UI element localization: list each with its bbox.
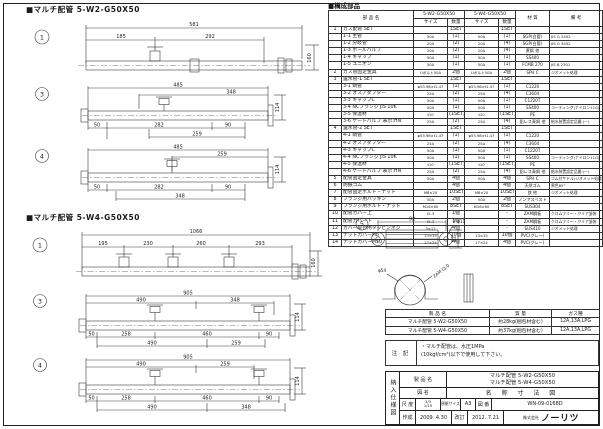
part-no: 1 [329, 27, 342, 34]
w2-size: φ53.98×t1.47 [414, 83, 448, 90]
balloon-number: 4 [38, 361, 42, 369]
remark: クロムフリー・クリア塗装 [550, 218, 603, 225]
gas-type: 12A,13A,LPG [552, 326, 600, 335]
w2-qty: (2) [448, 140, 465, 147]
table-row: 1-3 ボールバルブ20A(2)20A(4)黄銅 他 [329, 48, 603, 55]
material: SPH C [516, 69, 550, 76]
remark: 給水装置認定品番:(一) [550, 119, 603, 126]
table-row: 4-2 オスアダプター25A(2)25A(4)C3604 [329, 140, 603, 147]
product-name: マルチ配管 5-W4-G50X50 [386, 326, 490, 335]
remark [550, 197, 603, 204]
product-spec-table: 製 品 名 質 量 ガス種 マルチ配管 5-W2-G50X50約28kg(梱包材… [385, 309, 600, 336]
dim-label: 92 [409, 217, 415, 223]
table-row: 4-3 キャップC50A(1)50A(1)C1220T [329, 147, 603, 154]
section-w2-title: ■マルチ配管 5-W2-G50X50 [26, 4, 326, 15]
remark: コーティング(ナイロン11G) [550, 105, 603, 112]
w2-qty: (2) [448, 41, 465, 48]
part-no: 2 [329, 69, 342, 76]
w2-qty: (1SET) [448, 161, 465, 168]
part-no [329, 90, 342, 97]
drawing-number-label: 図 番 [475, 399, 491, 410]
w4-qty: 10個 [499, 232, 516, 239]
dim-label: 90 [225, 123, 231, 129]
parts-table-title: ■構成部品 [328, 2, 602, 10]
dim-label: 50 [94, 123, 100, 129]
w2-size: 50A [414, 55, 448, 62]
w4-qty: (1SET) [499, 161, 516, 168]
w4-qty: 4個 [499, 183, 516, 190]
col-header-gas-type: ガス種 [552, 309, 600, 318]
dim-label: 90 [266, 396, 272, 402]
notes-box: 注 記 ・マルチ配管は、水圧1MPa (10kgf/cm²)以下で使用して下さい… [385, 340, 599, 366]
dim-label: 50 [88, 396, 94, 402]
table-row: マルチ配管 5-W4-G50X50約37kg(梱包材含む)12A,13A,LPG [386, 326, 600, 335]
material: SPH C [516, 175, 550, 182]
ball-valve [224, 257, 234, 267]
w4-qty: 8SET [499, 204, 516, 211]
w2-qty: 1SET [448, 76, 465, 83]
material: PE [516, 161, 550, 168]
table-row: 3-6 ゲートバルブ 表示:HN25A(2)25A(4)鉛レス青銅 他給水装置認… [329, 119, 603, 126]
product-name: マルチ配管 5-W2-G50X50 [386, 318, 490, 327]
remark: 黒色65° [550, 183, 603, 190]
w2-size: 25A [414, 140, 448, 147]
w2-qty: (1) [448, 62, 465, 69]
part-no: 8 [329, 197, 342, 204]
remark: クロムフリー・クリア塗装 [550, 211, 603, 218]
part-no: 6 [329, 183, 342, 190]
dim-label: 258 [121, 332, 131, 338]
part-no [329, 154, 342, 161]
material: C1220 [516, 133, 550, 140]
remark: ジオメット処理 [550, 225, 603, 232]
w2-qty: (1) [448, 97, 465, 104]
dim-label: 490 [147, 405, 157, 411]
table-row: 9フランジ用ボルト・ナットM16×608SETM16×608SETSUS304 [329, 204, 603, 211]
table-row: 3-3 キャップC50A(1)50A(1)C1220T [329, 97, 603, 104]
w2-qty: 2個 [448, 69, 465, 76]
table-row: 3還水管-1 SET1SET1SET [329, 76, 603, 83]
part-no: 5 [329, 175, 342, 182]
part-name: 防振ゴム [342, 183, 414, 190]
note-line: (10kgf/cm²)以下で使用して下さい。 [421, 351, 594, 359]
w4-qty: - [499, 218, 516, 225]
part-name: 3-4 NCフランジ JIS 10K [342, 105, 414, 112]
w4-qty: 2個 [499, 197, 516, 204]
w4-size [465, 126, 499, 133]
w4-size: Uボルト50A [465, 69, 499, 76]
w2-qty: (2) [448, 119, 465, 126]
dim-label: 114 [275, 103, 281, 113]
w2-size: 50A [414, 147, 448, 154]
dim-label: 32 [452, 236, 458, 242]
w4-qty: 1SET [499, 27, 516, 34]
w4-qty: 4個 [499, 239, 516, 246]
dim-label: 259 [231, 341, 241, 347]
part-no: 10 [329, 211, 342, 218]
dim-label: 485 [173, 83, 183, 89]
dim-label: 490 [147, 341, 157, 347]
w4-qty: - [499, 225, 516, 232]
w2-qty: (1) [448, 34, 465, 41]
ball-valve [150, 51, 160, 61]
parts-table: 部 品 名 5-W2-G50X50 5-W4-G50X50 材 質 備 考 サイ… [328, 10, 603, 247]
w2-size: t10 [414, 112, 448, 119]
gate-valve [159, 99, 169, 105]
w4-qty: 2個 [499, 69, 516, 76]
w2-size: 20A [414, 48, 448, 55]
table-row: 3-1 銅管φ53.98×t1.47(1)φ53.98×t1.47(1)C122… [329, 83, 603, 90]
w4-size: M8×20 [465, 190, 499, 197]
part-name: 3-1 銅管 [342, 83, 414, 90]
w4-size: φ53.98×t1.47 [465, 133, 499, 140]
w2-qty: (2) [448, 90, 465, 97]
w2-size [414, 27, 448, 34]
dim-label: 490 [136, 298, 146, 304]
table-row: 3-2 オスアダプター25A(2)25A(4)C3604 [329, 90, 603, 97]
part-name: 1-2 分岐管 [342, 41, 414, 48]
w2-size: 50A [414, 105, 448, 112]
part-no [329, 48, 342, 55]
remark [550, 76, 603, 83]
dim-label: 114 [275, 165, 281, 175]
gate-valve [254, 371, 264, 377]
w4-qty: (1) [499, 154, 516, 161]
part-name: 4-2 オスアダプター [342, 140, 414, 147]
material: SGP(白管) [516, 41, 550, 48]
clamp-detail-drawing: 5 92 2-φ11 32 φ54 ZAM t3.0 [352, 214, 478, 314]
remark [550, 239, 603, 246]
w2-qty: (1) [448, 105, 465, 112]
w2-qty: (1) [448, 133, 465, 140]
material: PVC(グレー) [516, 239, 550, 246]
w2-size: 50A [414, 197, 448, 204]
part-no: 4 [329, 126, 342, 133]
part-no: 9 [329, 204, 342, 211]
product-mass: 約28kg(梱包材含む) [490, 318, 552, 327]
revised-date: 2012. 7.21 [467, 411, 503, 424]
w2-size: 50A [414, 34, 448, 41]
w2-qty: 4個 [448, 175, 465, 182]
table-row: 5配管固定金具50A4個50A4個SPH Cゴム付サドル(ジオメット処理) [329, 175, 603, 182]
part-no: 11 [329, 218, 342, 225]
w2-qty: (1) [448, 147, 465, 154]
bolt-hole [444, 237, 448, 241]
remark [550, 55, 603, 62]
w2-qty: (2) [448, 168, 465, 175]
w4-size: 50A [465, 197, 499, 204]
table-row: 4-5 保温材t10(1SET)t10(1SET)PE [329, 161, 603, 168]
w4-size: 50A [465, 175, 499, 182]
saddle-clamp-front [382, 276, 438, 299]
material: 天然ゴム [516, 183, 550, 190]
remark: JIS B 2301 [550, 62, 603, 69]
dim-label: 114 [295, 312, 301, 322]
part-no [329, 133, 342, 140]
part-no [329, 112, 342, 119]
part-name: 3-6 ゲートバルブ 表示:HN [342, 119, 414, 126]
col-header-qty: 数量 [448, 19, 465, 27]
table-row: 6防振ゴム4個4個天然ゴム黒色65° [329, 183, 603, 190]
col-header-model-w4: 5-W4-G50X50 [465, 11, 516, 19]
w4-size: 20A [465, 41, 499, 48]
col-header-size: サイズ [414, 19, 448, 27]
remark [550, 27, 603, 34]
dim-label: 50 [94, 185, 100, 191]
part-name: 1-4 キャップ [342, 55, 414, 62]
remark [550, 147, 603, 154]
remark: コーティング(ナイロン11G) [550, 154, 603, 161]
gate-valve [150, 307, 160, 313]
table-row: 1-4 キャップ50A(1)50A(1)SS400 [329, 55, 603, 62]
col-header-material: 材 質 [516, 11, 550, 27]
material: C1220T [516, 97, 550, 104]
w4-size: t10 [465, 112, 499, 119]
dia-callout: φ54 [378, 268, 387, 274]
company-name: ノーリツ [541, 411, 579, 424]
dim-label: 230 [143, 241, 153, 247]
table-row: 1-1 主管50A(1)50A(1)SGP(白管)JIS G 3452 [329, 34, 603, 41]
w2-view3-drawing: 3 485 348 50 282 90 259 114 [26, 81, 326, 143]
w2-qty: (1) [448, 55, 465, 62]
w4-qty: (4) [499, 41, 516, 48]
w2-size: 25A [414, 90, 448, 97]
w4-size: t10 [465, 161, 499, 168]
material: 鉛レス青銅 他 [516, 119, 550, 126]
dim-label: 348 [230, 298, 240, 304]
table-row: 4還水管-2 SET1SET1SET [329, 126, 603, 133]
part-name: ガス管固定金具 [342, 69, 414, 76]
w2-size: M8×20 [414, 190, 448, 197]
ball-valve [119, 257, 129, 267]
company-logo: 株式会社ノーリツ [503, 411, 598, 424]
title-block: 納入仕様図 製 品 名 マルチ配管 5-W2-G50X50 マルチ配管 5-W4… [385, 371, 599, 425]
col-header-model-w2: 5-W2-G50X50 [414, 11, 465, 19]
table-row: 3-5 保温材t10(1SET)t10(1SET)PE [329, 112, 603, 119]
balloon-number: 3 [38, 297, 42, 305]
dim-label: 460 [202, 332, 212, 338]
part-no [329, 34, 342, 41]
w2-size: 50A [414, 154, 448, 161]
remark [550, 48, 603, 55]
w2-size [414, 126, 448, 133]
dim-label: 259 [217, 152, 227, 158]
w2-size: 50A [414, 97, 448, 104]
table-row: 4-6 ゲートバルブ 表示:HN25A(2)25A(4)鉛レス青銅 他給水装置認… [329, 168, 603, 175]
part-name: 3-5 保温材 [342, 112, 414, 119]
w4-qty: (1) [499, 147, 516, 154]
material: 鉄 他 [516, 190, 550, 197]
w4-qty: 10SET [499, 190, 516, 197]
col-header-size: サイズ [465, 19, 499, 27]
part-name: 4-3 キャップC [342, 147, 414, 154]
material: C1220 [516, 83, 550, 90]
w4-qty: - [499, 211, 516, 218]
table-row: 7配管固定ボルト・ナットM8×2010SETM8×2010SET鉄 他ジオメット… [329, 190, 603, 197]
part-no [329, 161, 342, 168]
remark: ジオメット処理 [550, 69, 603, 76]
part-no [329, 41, 342, 48]
dim-label: 160 [311, 258, 317, 268]
col-header-qty: 数量 [499, 19, 516, 27]
table-row: 1-2 分岐管20A(2)20A(4)SGP(白管)JIS G 3452 [329, 41, 603, 48]
notes-text: ・マルチ配管は、水圧1MPa (10kgf/cm²)以下で使用して下さい。 [417, 341, 598, 365]
revised-label: 改訂 [451, 411, 467, 424]
paper-size: A3 [460, 399, 475, 410]
remark: 給水装置認定品番:(一) [550, 168, 603, 175]
remark [550, 97, 603, 104]
part-no [329, 119, 342, 126]
material: SUS304 [516, 204, 550, 211]
drawing-sheet: { "w2": { "title": "■マルチ配管 5-W2-G50X50",… [0, 0, 603, 429]
w4-qty: (1) [499, 55, 516, 62]
parts-table-section: ■構成部品 部 品 名 5-W2-G50X50 5-W4-G50X50 材 質 … [328, 2, 602, 247]
dim-label: 348 [175, 194, 185, 200]
remark [550, 126, 603, 133]
dim-label: 348 [226, 90, 236, 96]
part-no [329, 97, 342, 104]
part-no [329, 168, 342, 175]
w4-size: 20A [465, 48, 499, 55]
w4-size: 25A [465, 168, 499, 175]
material: PE [516, 112, 550, 119]
gate-valve [254, 307, 264, 313]
w2-size: M16×60 [414, 204, 448, 211]
w2-qty: (2) [448, 48, 465, 55]
w2-size [414, 76, 448, 83]
col-header-product: 製 品 名 [386, 309, 490, 318]
drawing-name-label: 図 名 [400, 388, 446, 397]
section-w4-title: ■マルチ配管 5-W4-G50X50 [26, 212, 326, 223]
w4-size: 50A [465, 62, 499, 69]
dim-label: 160 [307, 53, 313, 63]
w4-size: M16×60 [465, 204, 499, 211]
part-name: 還水管-2 SET [342, 126, 414, 133]
part-no: 12 [329, 225, 342, 232]
w4-size: 50A [465, 105, 499, 112]
w4-size [465, 27, 499, 34]
w2-qty: 8SET [448, 204, 465, 211]
w4-size [465, 183, 499, 190]
dim-label: 259 [192, 132, 202, 138]
w4-qty: 1SET [499, 76, 516, 83]
part-no [329, 147, 342, 154]
w4-qty: 1SET [499, 126, 516, 133]
product-name-2: マルチ配管 5-W4-G50X50 [490, 380, 555, 387]
dim-label: 460 [202, 396, 212, 402]
part-name: 4-6 ゲートバルブ 表示:HN [342, 168, 414, 175]
balloon-number: 4 [40, 152, 44, 160]
part-no: 14 [329, 239, 342, 246]
hole-callout: 2-φ11 [453, 219, 466, 225]
remark: JIS G 3452 [550, 34, 603, 41]
part-name: 3-2 オスアダプター [342, 90, 414, 97]
section-w2: ■マルチ配管 5-W2-G50X50 1 581 185 292 160 3 4… [26, 4, 326, 205]
part-name: 配管固定金具 [342, 175, 414, 182]
part-name: 4-4 NCフランジ JIS 10K [342, 154, 414, 161]
title-block-area: 製 品 名 質 量 ガス種 マルチ配管 5-W2-G50X50約28kg(梱包材… [385, 309, 599, 426]
remark: ジオメット処理 [550, 190, 603, 197]
part-name: 還水管-1 SET [342, 76, 414, 83]
w2-qty: 1SET [448, 126, 465, 133]
note-line: ・マルチ配管は、水圧1MPa [421, 343, 594, 351]
remark [550, 232, 603, 239]
col-header-remark: 備 考 [550, 11, 603, 27]
col-header-part-name: 部 品 名 [329, 11, 414, 27]
part-no [329, 55, 342, 62]
part-name: 4-1 銅管 [342, 133, 414, 140]
table-row: 4-1 銅管φ53.98×t1.47(1)φ53.98×t1.47(1)C122… [329, 133, 603, 140]
w4-qty: (1SET) [499, 112, 516, 119]
ball-valve [168, 257, 178, 267]
material [516, 27, 550, 34]
dim-label: 260 [196, 241, 206, 247]
product-name-1: マルチ配管 5-W2-G50X50 [490, 373, 555, 380]
w4-size: 50A [465, 97, 499, 104]
material [516, 126, 550, 133]
table-row: 8フランジ用パッキン50A2個50A2個ノンアスベスト [329, 197, 603, 204]
w2-qty: 4個 [448, 183, 465, 190]
w4-size: 50A [465, 147, 499, 154]
w4-size: 50A [465, 55, 499, 62]
notes-label: 注 記 [386, 341, 417, 365]
w4-size: 25A [465, 140, 499, 147]
created-date: 2009. 4.30 [415, 411, 451, 424]
dim-label: 282 [154, 185, 164, 191]
table-row: マルチ配管 5-W2-G50X50約28kg(梱包材含む)12A,13A,LPG [386, 318, 600, 327]
w4-size: 50A [465, 154, 499, 161]
w4-size: 25A [465, 90, 499, 97]
dim-label: 485 [173, 145, 183, 151]
dim-label: 282 [154, 123, 164, 129]
gas-type: 12A,13A,LPG [552, 318, 600, 327]
material: SGP(白管) [516, 34, 550, 41]
w4-size: 25A [465, 119, 499, 126]
w4-size: 50A [465, 34, 499, 41]
material: SS400 [516, 55, 550, 62]
company-prefix: 株式会社 [523, 415, 539, 421]
balloon-number: 5 [360, 220, 364, 228]
part-no [329, 140, 342, 147]
delivery-spec-label: 納入仕様図 [386, 372, 400, 424]
dim-label: 581 [189, 22, 199, 28]
material: 黄銅 他 [516, 48, 550, 55]
drawing-number: WN-09-0168D [491, 399, 598, 410]
dim-label: 490 [136, 362, 146, 368]
scale-label: 尺 度 [400, 399, 415, 410]
w4-view4-drawing: 4 905 490 259 50 258 460 90 490 348 114 [26, 353, 326, 417]
w4-size: φ53.98×t1.47 [465, 83, 499, 90]
balloon-number: 1 [40, 33, 44, 41]
w2-size: 25A [414, 119, 448, 126]
part-name: 1-1 主管 [342, 34, 414, 41]
material: C3604 [516, 90, 550, 97]
dim-label: 292 [205, 34, 215, 40]
remark [550, 140, 603, 147]
balloon-number: 3 [40, 90, 44, 98]
bolt-hole [376, 237, 380, 241]
dim-label: 905 [183, 291, 193, 297]
paper-size-label: 原紙サイズ [440, 399, 460, 410]
part-no: 3 [329, 76, 342, 83]
w4-size [465, 76, 499, 83]
drawing-name: 名 称 寸 法 図 [446, 388, 598, 397]
dim-label: 258 [121, 396, 131, 402]
remark [550, 133, 603, 140]
remark [550, 161, 603, 168]
remark [550, 112, 603, 119]
part-name: 配管固定ボルト・ナット [342, 190, 414, 197]
